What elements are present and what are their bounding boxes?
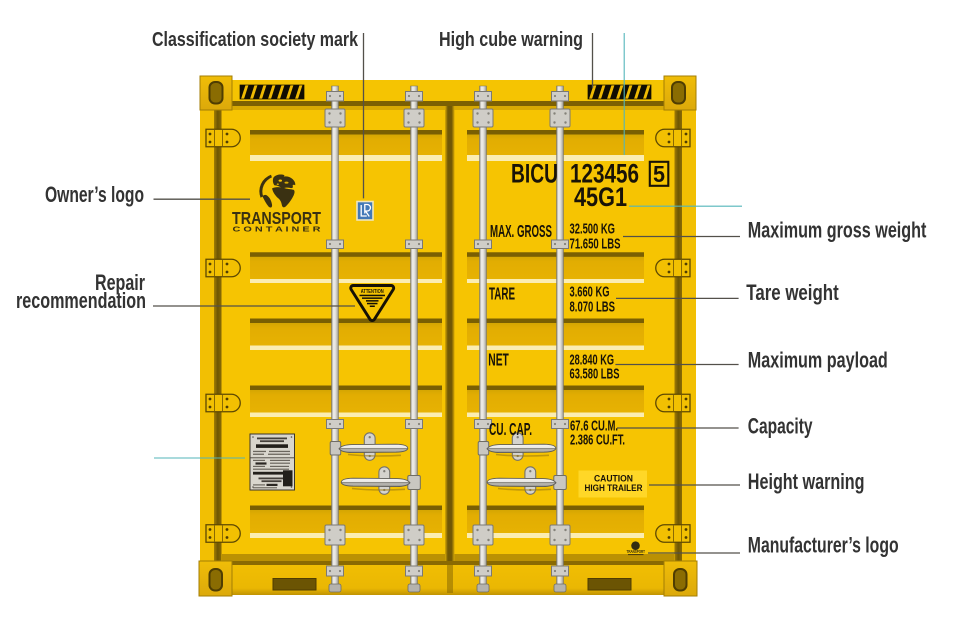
svg-text:Maximum gross weight: Maximum gross weight: [748, 218, 927, 243]
svg-text:2.386 CU.FT.: 2.386 CU.FT.: [570, 432, 625, 448]
svg-text:Classification society mark: Classification society mark: [152, 28, 358, 51]
svg-text:recommendation: recommendation: [16, 288, 146, 313]
svg-text:High cube warning: High cube warning: [439, 28, 583, 51]
svg-text:CU. CAP.: CU. CAP.: [489, 419, 532, 439]
svg-text:Maximum payload: Maximum payload: [748, 347, 888, 372]
svg-text:63.580 LBS: 63.580 LBS: [570, 366, 620, 382]
svg-text:BICU: BICU: [511, 159, 558, 189]
svg-text:MAX. GROSS: MAX. GROSS: [490, 221, 552, 241]
svg-text:Tare weight: Tare weight: [746, 280, 839, 305]
svg-text:Height warning: Height warning: [748, 469, 865, 494]
svg-text:C O N T A I N E R: C O N T A I N E R: [233, 225, 322, 234]
svg-text:HIGH TRAILER: HIGH TRAILER: [585, 483, 643, 494]
svg-text:Owner’s logo: Owner’s logo: [45, 182, 144, 207]
svg-text:3.660 KG: 3.660 KG: [570, 285, 610, 301]
svg-text:NET: NET: [488, 349, 509, 369]
svg-text:5: 5: [653, 161, 665, 187]
svg-text:71.650 LBS: 71.650 LBS: [570, 236, 621, 252]
svg-text:TRANSPORT: TRANSPORT: [627, 549, 646, 554]
svg-text:TARE: TARE: [489, 283, 515, 303]
svg-text:Manufacturer’s logo: Manufacturer’s logo: [748, 533, 899, 558]
svg-text:32.500 KG: 32.500 KG: [570, 222, 616, 238]
svg-text:Capacity: Capacity: [748, 413, 813, 438]
svg-text:8.070 LBS: 8.070 LBS: [570, 299, 616, 315]
svg-text:45G1: 45G1: [574, 182, 627, 212]
svg-text:ATTENTION: ATTENTION: [361, 289, 384, 295]
